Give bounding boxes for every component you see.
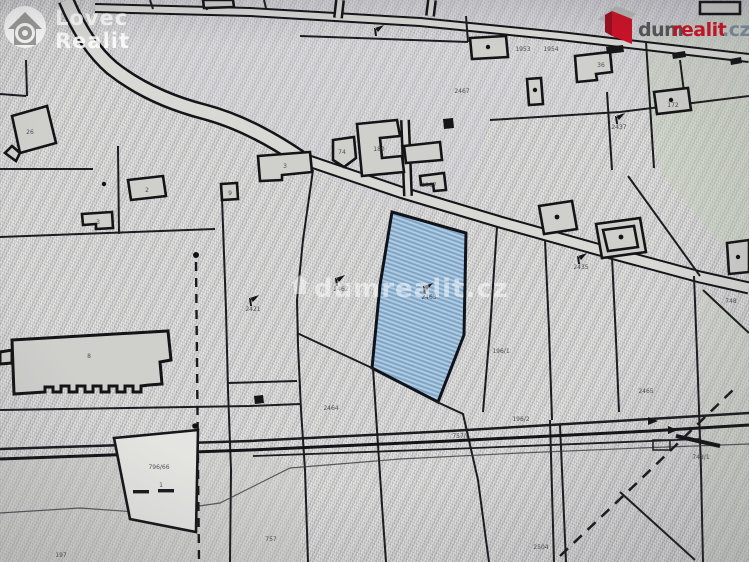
parcel-number: 74	[338, 149, 346, 156]
parcel-number: 2437	[611, 124, 626, 131]
parcel-number: 3	[96, 219, 100, 226]
meadow-symbol-dash-2	[158, 489, 174, 492]
highlighted-parcel	[372, 212, 466, 402]
parcel-number: 1954	[543, 46, 558, 53]
dumrealit-text-tld: .cz	[722, 19, 749, 41]
lovec-logo-line1: Lovec	[55, 6, 128, 30]
parcel-number: 197	[55, 552, 67, 559]
parcel-number: 1953	[515, 46, 530, 53]
lovec-dot-icon	[22, 30, 28, 36]
parcel-number: 9	[228, 190, 232, 197]
parcel-number: 2	[145, 187, 149, 194]
parcel-number: 172	[667, 102, 679, 109]
parcel-number: 2464	[323, 405, 338, 412]
parcel-number: 796/66	[148, 464, 169, 471]
cadastral-map-canvas: 26 2 3 9 3 74 180 1907 1953 1954 36 172 …	[0, 0, 749, 562]
watermark-house-icon	[291, 275, 309, 294]
building-crenellated	[0, 331, 171, 394]
meadow-symbol-dash-1	[133, 490, 149, 493]
parcel-number: 1	[159, 482, 163, 489]
parcel-number: 26	[26, 129, 34, 136]
cadastral-map-photo: 26 2 3 9 3 74 180 1907 1953 1954 36 172 …	[0, 0, 749, 562]
dumrealit-house-side-icon	[605, 11, 612, 36]
parcel-number: 757/6	[452, 433, 469, 440]
parcel-number: 3	[283, 163, 287, 170]
parcel-number: 2467	[454, 88, 469, 95]
parcel-number: 748	[725, 298, 737, 305]
parcel-number: 2504	[533, 544, 548, 551]
parcel-number: 180	[373, 146, 385, 153]
parcel-number: 36	[597, 62, 605, 69]
dumrealit-text-accent: realit	[672, 19, 727, 41]
parcel-number: 748/1	[692, 454, 709, 461]
center-watermark: dumrealit.cz	[291, 274, 509, 304]
parcel-number: 8	[87, 353, 91, 360]
parcel-number: 2421	[245, 306, 260, 313]
watermark-text: dumrealit.cz	[314, 274, 509, 304]
parcel-number: 196/2	[512, 416, 529, 423]
parcel-number: 1907	[421, 182, 436, 189]
parcel-number: 2465	[638, 388, 653, 395]
parcel-number: 757	[265, 536, 277, 543]
parcel-number: 2435	[573, 264, 588, 271]
parcel-number: 196/1	[492, 348, 509, 355]
lovec-realit-logo: Lovec Realit	[4, 6, 130, 53]
lovec-logo-line2: Realit	[55, 29, 130, 53]
